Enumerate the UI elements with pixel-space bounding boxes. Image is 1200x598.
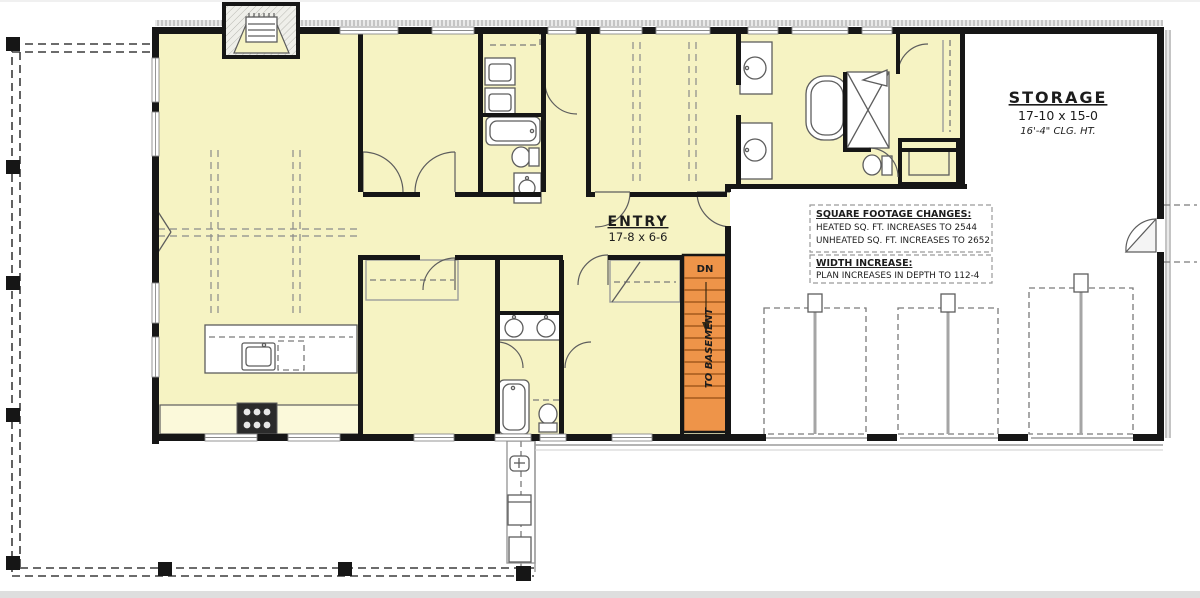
window — [540, 434, 566, 441]
master-vanity-2 — [740, 123, 772, 179]
toilet — [863, 155, 881, 175]
exterior-wall-bottom — [867, 434, 897, 441]
basement-stairs: DN TO BASEMENT — [683, 255, 727, 432]
width-increase-title: WIDTH INCREASE: — [816, 258, 912, 269]
window — [600, 27, 642, 34]
window — [152, 283, 159, 323]
window — [656, 27, 710, 34]
window — [432, 27, 474, 34]
window — [288, 434, 340, 441]
outdoor-kitchen — [507, 441, 535, 563]
window — [792, 27, 848, 34]
window — [612, 434, 652, 441]
porch-post — [6, 276, 20, 290]
storage-dimensions: 17-10 x 15-0 — [1018, 108, 1098, 123]
porch-post — [516, 566, 531, 581]
toilet-tank — [882, 156, 892, 175]
window — [495, 434, 531, 441]
toilet — [539, 404, 557, 424]
floor-plan-page: DN TO BASEMENT — [0, 0, 1200, 598]
exterior-wall-right — [1157, 27, 1164, 219]
stairs-to-basement-label: TO BASEMENT — [704, 307, 715, 388]
porch-post — [6, 37, 20, 51]
siding-hatch-right — [1165, 30, 1171, 438]
double-vanity — [498, 314, 561, 340]
window — [152, 337, 159, 377]
window — [152, 112, 159, 156]
window — [340, 27, 398, 34]
garage-separation-wall — [727, 184, 967, 189]
outdoor-fridge — [509, 537, 531, 562]
toilet-tank — [539, 423, 557, 432]
storage-ceiling-height: 16'-4" CLG. HT. — [1020, 126, 1096, 137]
kitchen-counter — [160, 403, 360, 434]
paper-edge-top — [0, 0, 1200, 2]
toilet-tank — [529, 148, 539, 166]
exterior-wall-right — [1157, 252, 1164, 441]
outdoor-cabinet — [508, 495, 531, 525]
paper-edge-bottom — [0, 591, 1200, 598]
window — [205, 434, 257, 441]
storage-label: STORAGE — [1009, 88, 1108, 107]
entry-dimensions: 17-8 x 6-6 — [609, 230, 668, 244]
kitchen-island — [205, 325, 357, 373]
garage-door-opener — [1074, 274, 1088, 292]
porch-post — [6, 556, 20, 570]
toilet — [512, 147, 530, 167]
porch-post — [6, 408, 20, 422]
floor-plan-drawing: DN TO BASEMENT — [0, 0, 1200, 598]
vanity-sink — [514, 173, 541, 203]
freestanding-tub — [806, 76, 848, 140]
square-footage-line-2: UNHEATED SQ. FT. INCREASES TO 2652 — [816, 236, 990, 246]
square-footage-line-1: HEATED SQ. FT. INCREASES TO 2544 — [816, 223, 977, 233]
window — [414, 434, 454, 441]
window — [152, 58, 159, 102]
porch-post — [338, 562, 352, 576]
width-increase-line-1: PLAN INCREASES IN DEPTH TO 112-4 — [816, 271, 980, 281]
exterior-wall-bottom — [998, 434, 1028, 441]
entry-label: ENTRY — [608, 214, 669, 230]
garage-door-opener — [941, 294, 955, 312]
porch-post — [158, 562, 172, 576]
garage-door-opener — [808, 294, 822, 312]
fireplace — [224, 4, 298, 57]
porch-post — [6, 160, 20, 174]
square-footage-title: SQUARE FOOTAGE CHANGES: — [816, 209, 971, 220]
stairs-dn-label: DN — [697, 264, 714, 275]
window — [748, 27, 778, 34]
window — [862, 27, 892, 34]
plan-notes: SQUARE FOOTAGE CHANGES: HEATED SQ. FT. I… — [810, 205, 992, 283]
siding-hatch-top — [155, 20, 1163, 26]
window — [548, 27, 576, 34]
range — [237, 403, 277, 434]
master-closet-cabinet — [900, 140, 958, 184]
